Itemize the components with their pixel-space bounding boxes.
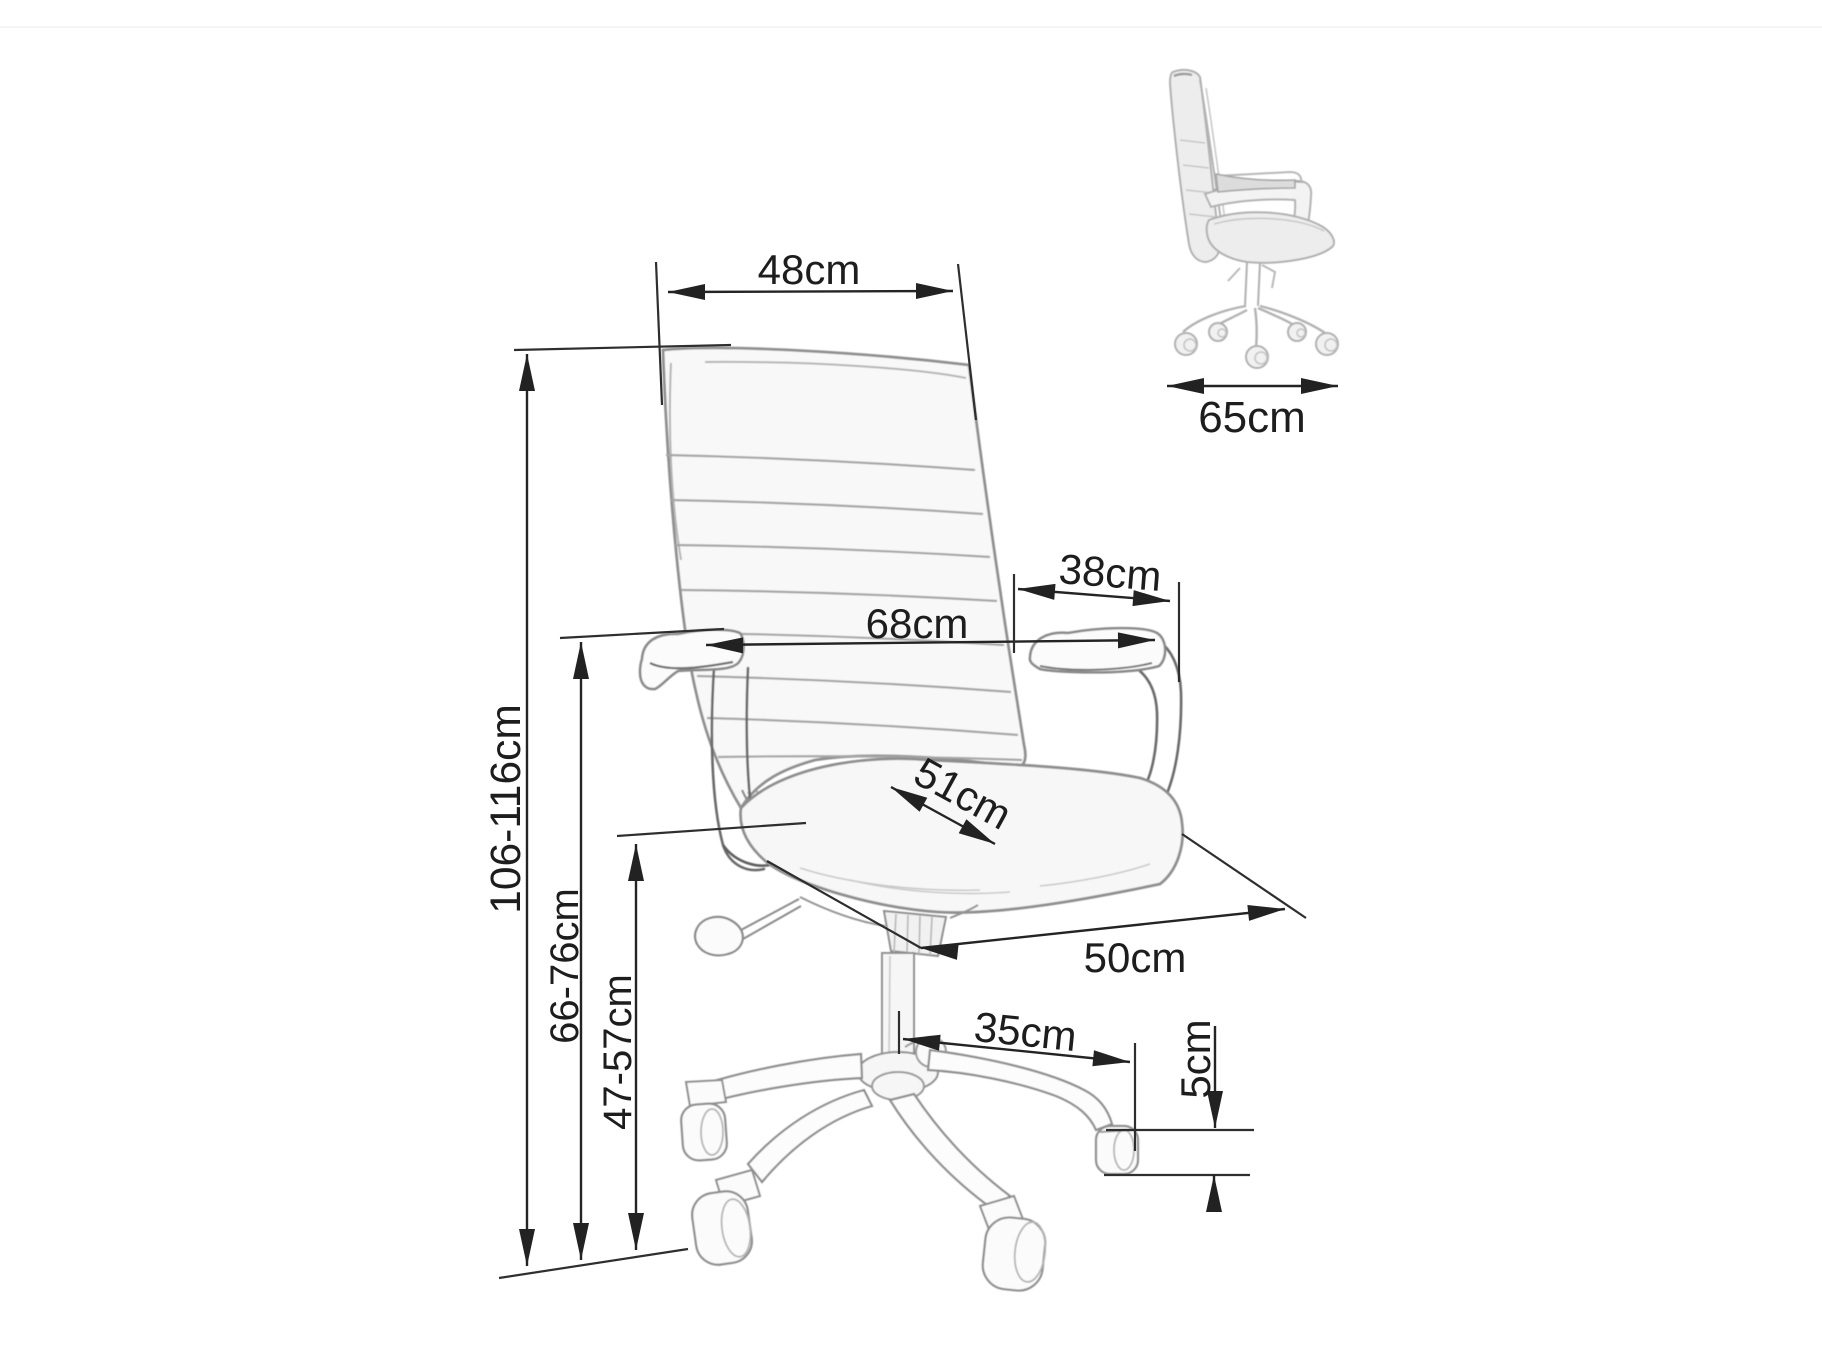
svg-text:47-57cm: 47-57cm (596, 974, 640, 1130)
svg-text:106-116cm: 106-116cm (483, 704, 530, 913)
svg-text:50cm: 50cm (1084, 934, 1187, 981)
svg-text:5cm: 5cm (1172, 1019, 1219, 1098)
svg-text:66-76cm: 66-76cm (543, 888, 587, 1044)
svg-text:68cm: 68cm (866, 600, 969, 647)
svg-text:65cm: 65cm (1198, 393, 1306, 442)
svg-text:48cm: 48cm (758, 246, 861, 293)
svg-text:38cm: 38cm (1057, 545, 1163, 600)
